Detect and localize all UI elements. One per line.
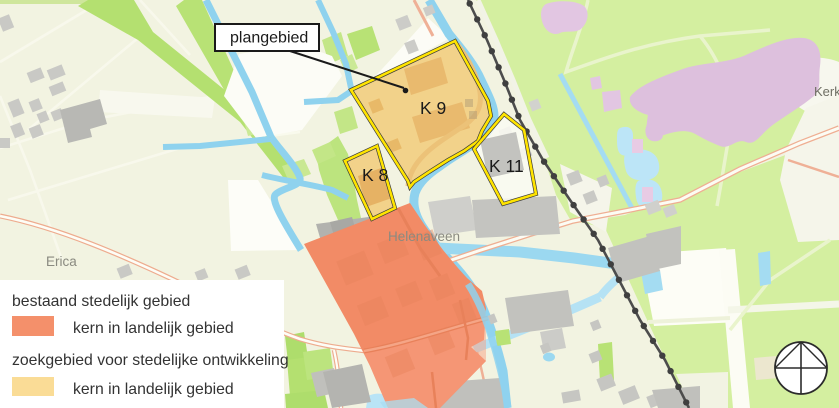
- svg-text:kern in landelijk gebied: kern in landelijk gebied: [73, 381, 234, 398]
- svg-text:kern in landelijk gebied: kern in landelijk gebied: [73, 320, 234, 337]
- svg-text:Helenaveen: Helenaveen: [388, 229, 460, 244]
- svg-text:K 11: K 11: [489, 156, 524, 176]
- svg-text:Erica: Erica: [46, 254, 77, 269]
- svg-text:K 8: K 8: [362, 165, 388, 185]
- svg-text:plangebied: plangebied: [230, 30, 308, 47]
- svg-text:K 9: K 9: [420, 98, 446, 118]
- svg-text:zoekgebied voor stedelijke ont: zoekgebied voor stedelijke ontwikkeling: [12, 352, 289, 369]
- svg-text:bestaand stedelijk gebied: bestaand stedelijk gebied: [12, 293, 190, 310]
- svg-text:Kerk: Kerk: [814, 84, 839, 99]
